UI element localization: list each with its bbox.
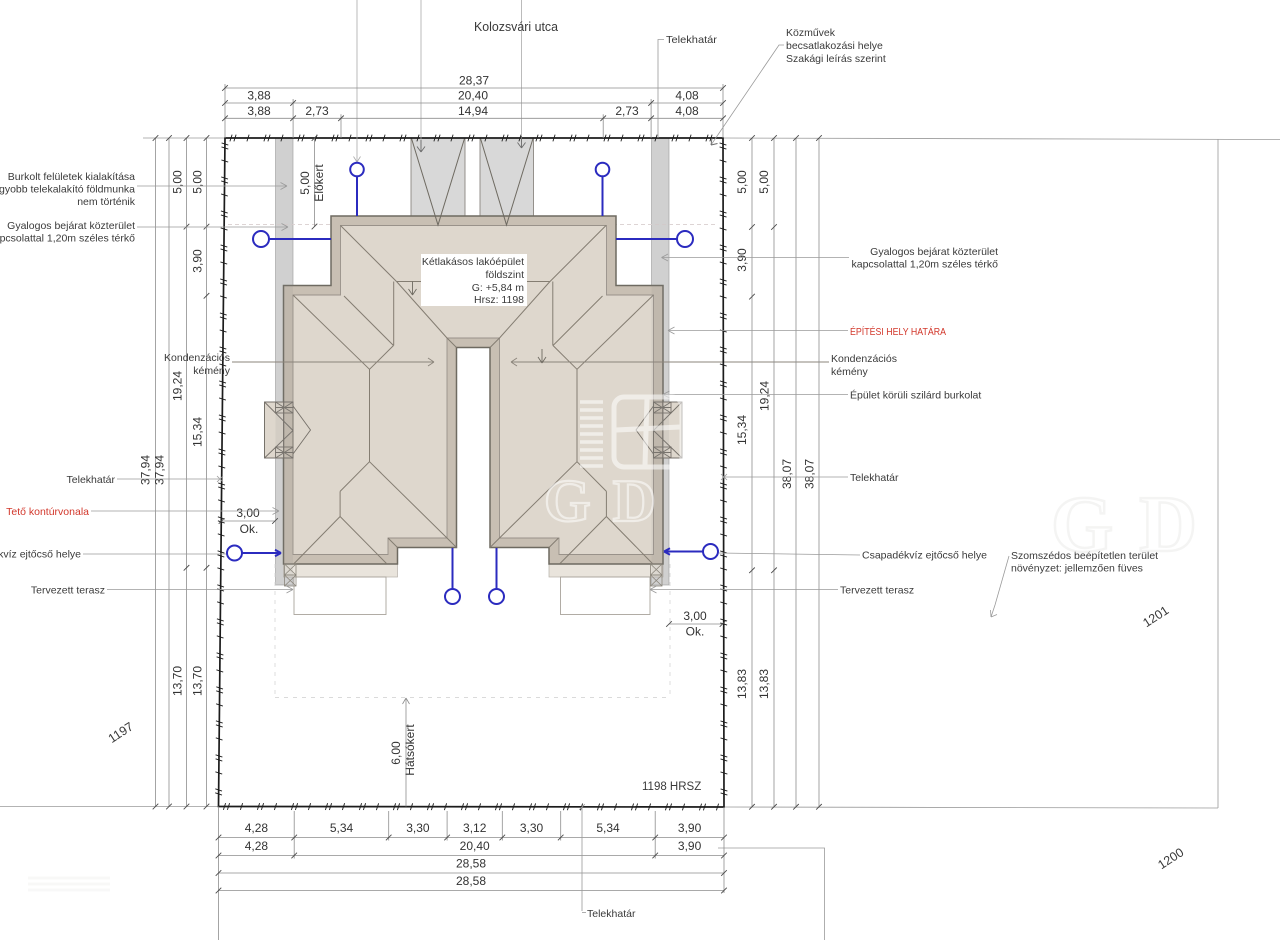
svg-text:15,34: 15,34 [735,415,749,445]
svg-text:28,58: 28,58 [456,857,486,871]
svg-text:3,00: 3,00 [683,609,707,623]
svg-text:kapcsolattal 1,20m széles térk: kapcsolattal 1,20m széles térkő [0,233,135,245]
svg-text:nagyobb telekalakító földmunka: nagyobb telekalakító földmunka [0,184,135,196]
svg-text:Tervezett terasz: Tervezett terasz [840,585,914,597]
svg-text:Ok.: Ok. [240,522,259,536]
svg-text:38,07: 38,07 [780,459,794,489]
svg-text:Hrsz: 1198: Hrsz: 1198 [474,294,524,306]
svg-text:Tető kontúrvonala: Tető kontúrvonala [6,506,89,518]
svg-text:3,88: 3,88 [247,104,271,118]
svg-text:3,12: 3,12 [463,821,487,835]
svg-text:4,28: 4,28 [245,821,269,835]
svg-text:5,34: 5,34 [330,821,354,835]
svg-text:5,00: 5,00 [757,170,771,194]
svg-text:13,70: 13,70 [171,666,185,696]
svg-text:Előkert: Előkert [312,164,326,202]
svg-text:3,90: 3,90 [191,249,205,273]
svg-text:Telekhatár: Telekhatár [666,34,718,46]
svg-text:3,90: 3,90 [735,248,749,272]
svg-text:Kondenzációs: Kondenzációs [831,353,897,365]
svg-text:kémény: kémény [193,365,231,377]
svg-text:ÉPÍTÉSI HELY HATÁRA: ÉPÍTÉSI HELY HATÁRA [850,325,946,338]
svg-text:becsatlakozási helye: becsatlakozási helye [786,40,883,52]
svg-text:Épület körüli szilárd burkolat: Épület körüli szilárd burkolat [850,389,981,402]
svg-text:Ok.: Ok. [686,625,705,639]
svg-text:5,00: 5,00 [298,171,312,195]
svg-text:38,07: 38,07 [803,459,817,489]
svg-text:19,24: 19,24 [171,371,185,401]
svg-text:Telekhatár: Telekhatár [587,908,636,920]
svg-text:13,83: 13,83 [735,669,749,699]
svg-text:Telekhatár: Telekhatár [850,472,899,484]
svg-text:5,34: 5,34 [596,821,620,835]
svg-text:kémény: kémény [831,366,869,378]
svg-text:Kétlakásos lakóépület: Kétlakásos lakóépület [422,256,524,268]
svg-text:3,30: 3,30 [406,821,430,835]
svg-text:GD: GD [544,468,678,534]
svg-text:28,58: 28,58 [456,874,486,888]
svg-text:Hátsókert: Hátsókert [403,724,417,776]
svg-text:Csapadékvíz ejtőcső helye: Csapadékvíz ejtőcső helye [862,550,987,562]
svg-text:3,90: 3,90 [678,821,702,835]
svg-text:15,34: 15,34 [191,417,205,447]
svg-text:Burkolt felületek kialakítása: Burkolt felületek kialakítása [8,171,135,183]
svg-text:kapcsolattal 1,20m széles térk: kapcsolattal 1,20m széles térkő [852,259,999,271]
svg-text:3,00: 3,00 [236,506,260,520]
svg-text:37,94: 37,94 [139,455,153,485]
svg-text:Kolozsvári utca: Kolozsvári utca [474,19,559,34]
svg-text:13,70: 13,70 [191,666,205,696]
svg-text:20,40: 20,40 [460,839,490,853]
svg-text:37,94: 37,94 [153,455,167,485]
svg-text:20,40: 20,40 [458,89,488,103]
svg-text:Közművek: Közművek [786,27,836,39]
svg-text:GD: GD [1051,481,1223,569]
svg-text:2,73: 2,73 [615,104,639,118]
svg-text:4,08: 4,08 [675,89,699,103]
svg-text:Telekhatár: Telekhatár [67,474,116,486]
svg-text:Csapadékvíz ejtőcső helye: Csapadékvíz ejtőcső helye [0,549,81,561]
svg-text:19,24: 19,24 [758,381,772,411]
svg-text:1198 HRSZ: 1198 HRSZ [642,781,701,793]
svg-text:28,37: 28,37 [459,74,489,88]
svg-text:14,94: 14,94 [458,104,488,118]
svg-text:3,88: 3,88 [247,89,271,103]
svg-text:3,90: 3,90 [678,839,702,853]
svg-text:5,00: 5,00 [735,170,749,194]
svg-text:Szakági leírás szerint: Szakági leírás szerint [786,53,886,65]
svg-text:2,73: 2,73 [305,104,329,118]
svg-text:Gyalogos bejárat közterület: Gyalogos bejárat közterület [7,220,135,232]
svg-text:Kondenzációs: Kondenzációs [164,352,230,364]
svg-text:földszint: földszint [485,269,524,281]
svg-text:Gyalogos bejárat közterület: Gyalogos bejárat közterület [870,246,998,258]
svg-text:G: +5,84 m: G: +5,84 m [472,282,524,294]
svg-text:4,28: 4,28 [245,839,269,853]
svg-text:4,08: 4,08 [675,104,699,118]
svg-text:13,83: 13,83 [757,669,771,699]
svg-text:5,00: 5,00 [191,170,205,194]
svg-text:3,30: 3,30 [520,821,544,835]
svg-text:nem történik: nem történik [77,196,136,208]
svg-text:Tervezett terasz: Tervezett terasz [31,585,105,597]
svg-text:5,00: 5,00 [171,170,185,194]
svg-text:6,00: 6,00 [389,741,403,765]
